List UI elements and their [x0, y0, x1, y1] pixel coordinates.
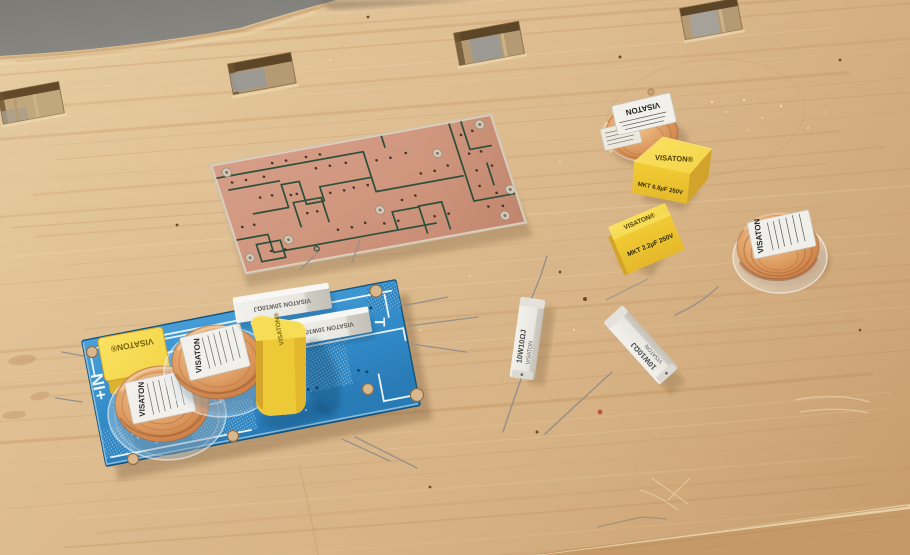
svg-text:VISATON: VISATON: [137, 381, 147, 416]
